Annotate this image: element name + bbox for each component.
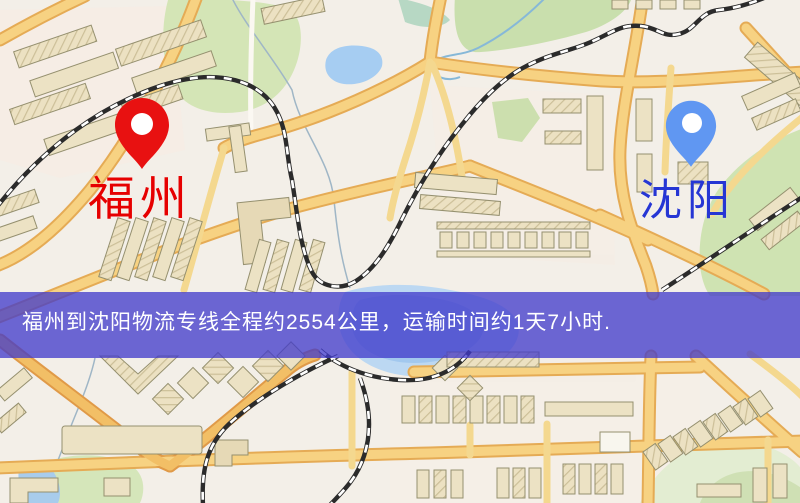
destination-city-label: 沈阳 [639, 180, 735, 223]
route-info-text: 福州到沈阳物流专线全程约2554公里，运输时间约1天7小时. [22, 306, 611, 336]
route-info-banner: 福州到沈阳物流专线全程约2554公里，运输时间约1天7小时. [0, 292, 800, 358]
origin-city-label: 福州 [88, 177, 192, 224]
map-background [0, 0, 800, 503]
minor-white-roads [251, 0, 253, 135]
route-map-image: 福州 沈阳 福州到沈阳物流专线全程约2554公里，运输时间约1天7小时. [0, 0, 800, 503]
